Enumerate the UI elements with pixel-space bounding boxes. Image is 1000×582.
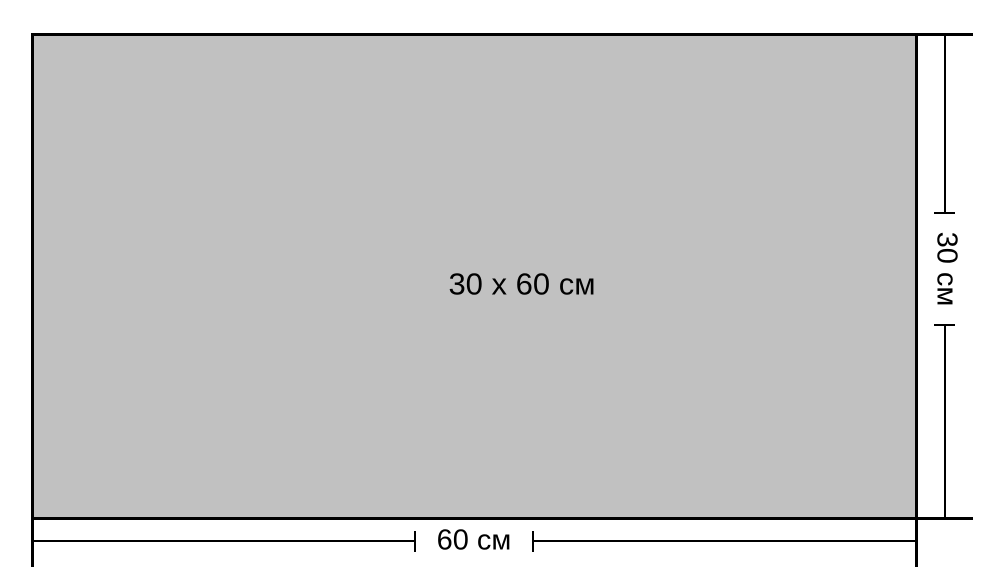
width-dimension-line-left	[31, 540, 415, 542]
width-dimension-line-right	[533, 540, 918, 542]
width-dimension-label: 60 см	[437, 527, 512, 556]
extension-line-bottom-right-vertical	[915, 519, 918, 567]
height-dimension-tick-top	[934, 212, 955, 214]
extension-line-bottom-left	[31, 519, 34, 567]
height-dimension-label: 30 см	[932, 232, 961, 307]
dimension-diagram: 30 x 60 см 30 см 60 см	[0, 0, 1000, 582]
width-dimension-tick-left	[414, 531, 416, 552]
height-dimension-line-upper	[944, 35, 946, 213]
size-label: 30 x 60 см	[448, 269, 595, 300]
height-dimension-line-lower	[944, 326, 946, 518]
rectangle: 30 x 60 см	[31, 33, 918, 520]
